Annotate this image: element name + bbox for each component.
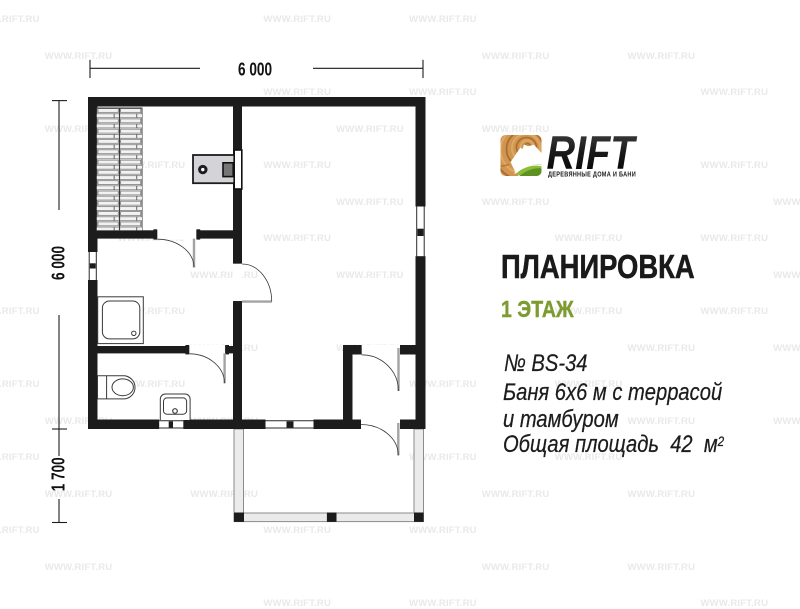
svg-text:6 000: 6 000 (238, 60, 272, 80)
svg-text:ДЕРЕВЯННЫЕ ДОМА И БАНИ: ДЕРЕВЯННЫЕ ДОМА И БАНИ (548, 171, 636, 178)
svg-text:1 700: 1 700 (49, 457, 69, 491)
svg-text:6 000: 6 000 (49, 246, 69, 280)
